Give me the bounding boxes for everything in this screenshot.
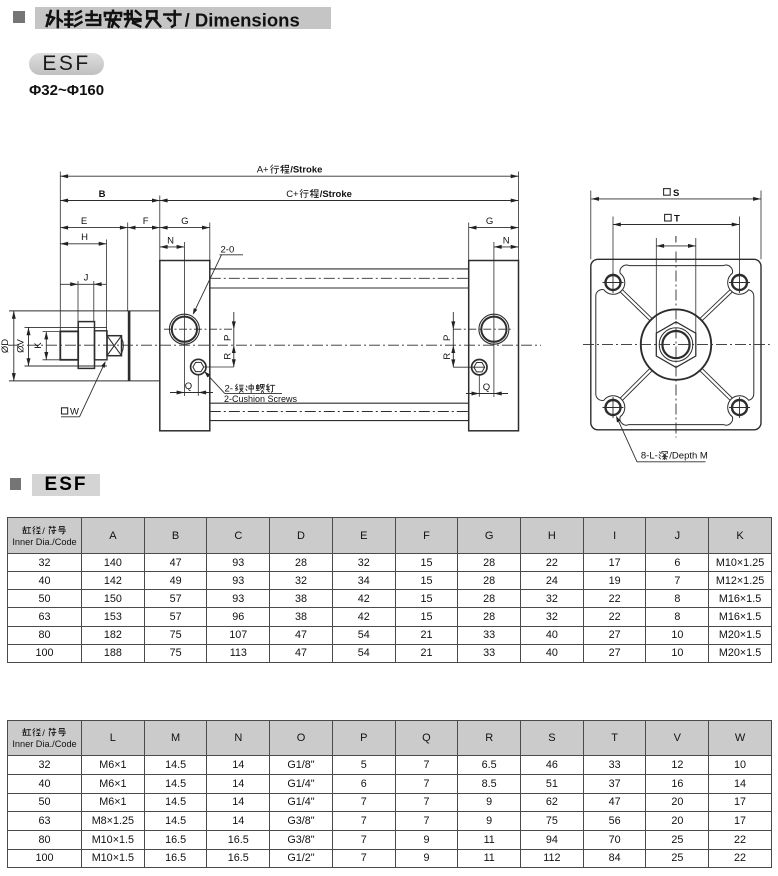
svg-text:N: N [503, 235, 510, 246]
svg-text:C+: C+ [286, 189, 299, 200]
svg-text:H: H [81, 232, 88, 243]
svg-text:J: J [84, 273, 89, 284]
svg-text:/Depth M: /Depth M [669, 451, 708, 462]
svg-text:N: N [167, 235, 174, 246]
svg-text:/Stroke: /Stroke [290, 165, 322, 176]
svg-text:S: S [673, 188, 679, 199]
svg-text:B: B [99, 189, 106, 200]
svg-text:ØD: ØD [0, 339, 11, 353]
svg-text:G: G [486, 216, 493, 227]
svg-text:I: I [675, 234, 678, 245]
svg-text:/ Dimensions: / Dimensions [185, 10, 300, 31]
svg-text:K: K [33, 342, 44, 349]
svg-text:2-Cushion Screws: 2-Cushion Screws [224, 394, 298, 404]
svg-text:P: P [222, 335, 233, 341]
svg-text:F: F [143, 216, 149, 227]
svg-text:A+: A+ [257, 165, 269, 176]
svg-text:W: W [70, 407, 79, 418]
svg-text:G: G [181, 216, 188, 227]
svg-text:/: / [42, 728, 45, 738]
svg-text:2-0: 2-0 [221, 244, 235, 255]
svg-text:E: E [81, 216, 87, 227]
svg-text:Q: Q [483, 382, 490, 393]
svg-text:R: R [442, 353, 453, 360]
svg-text:/Stroke: /Stroke [320, 189, 352, 200]
svg-text:P: P [442, 335, 453, 341]
svg-text:8-L-: 8-L- [641, 451, 658, 462]
svg-text:Q: Q [185, 381, 192, 392]
svg-text:T: T [674, 214, 680, 225]
svg-text:ØV: ØV [16, 338, 27, 352]
svg-text:/: / [42, 525, 45, 535]
svg-text:R: R [222, 353, 233, 360]
